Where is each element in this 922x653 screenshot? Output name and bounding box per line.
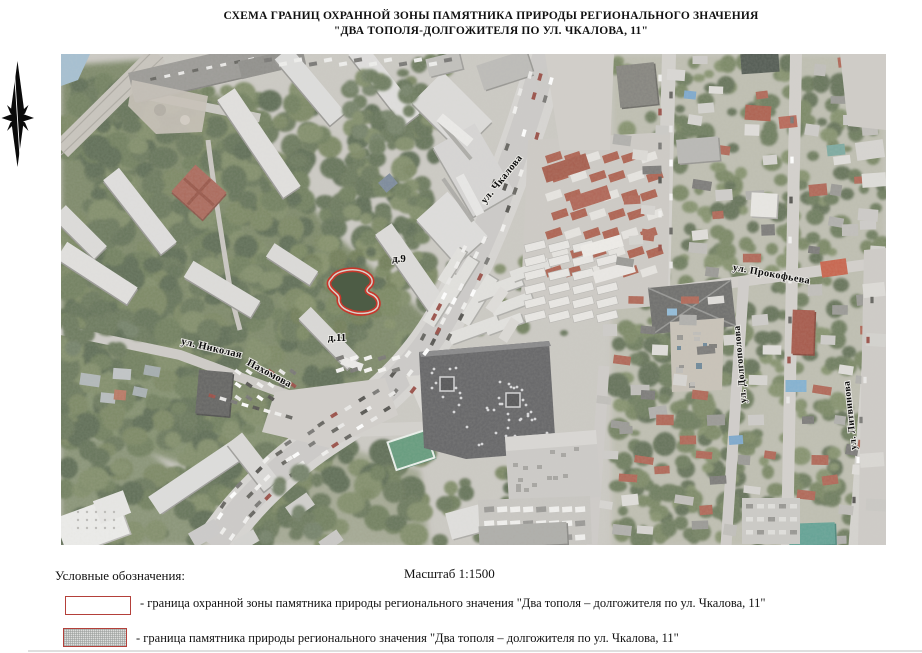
svg-text:д.9: д.9 [392,253,406,265]
svg-text:д.11: д.11 [328,332,346,344]
